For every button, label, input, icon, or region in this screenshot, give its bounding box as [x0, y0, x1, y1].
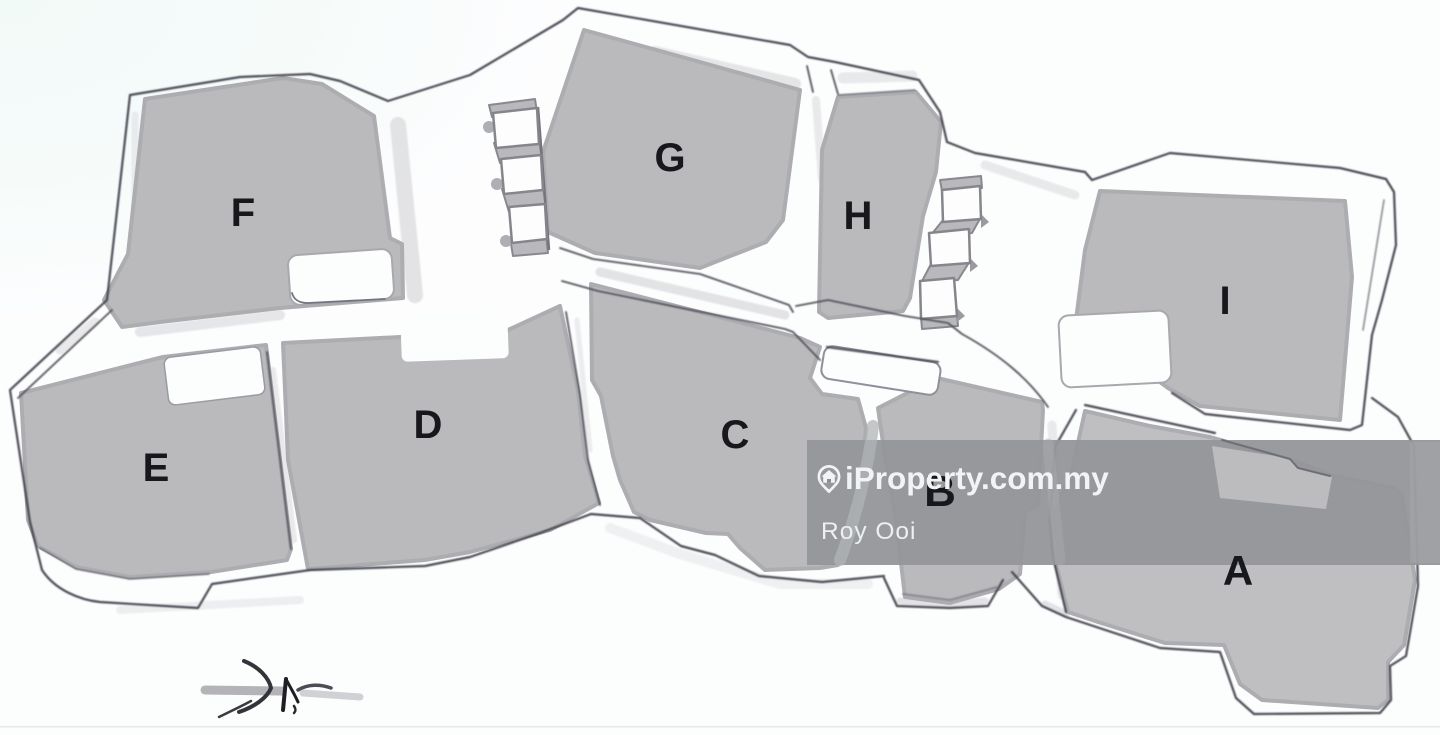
svg-text:E: E [143, 446, 170, 490]
svg-text:I: I [1219, 279, 1230, 323]
svg-text:F: F [231, 191, 255, 235]
svg-text:Roy Ooi: Roy Ooi [821, 518, 917, 545]
svg-text:A: A [1223, 547, 1253, 594]
svg-text:D: D [414, 403, 443, 447]
svg-text:C: C [721, 413, 750, 457]
svg-text:H: H [844, 194, 873, 238]
svg-text:iProperty.com.my: iProperty.com.my [845, 460, 1109, 496]
svg-text:G: G [654, 136, 685, 180]
